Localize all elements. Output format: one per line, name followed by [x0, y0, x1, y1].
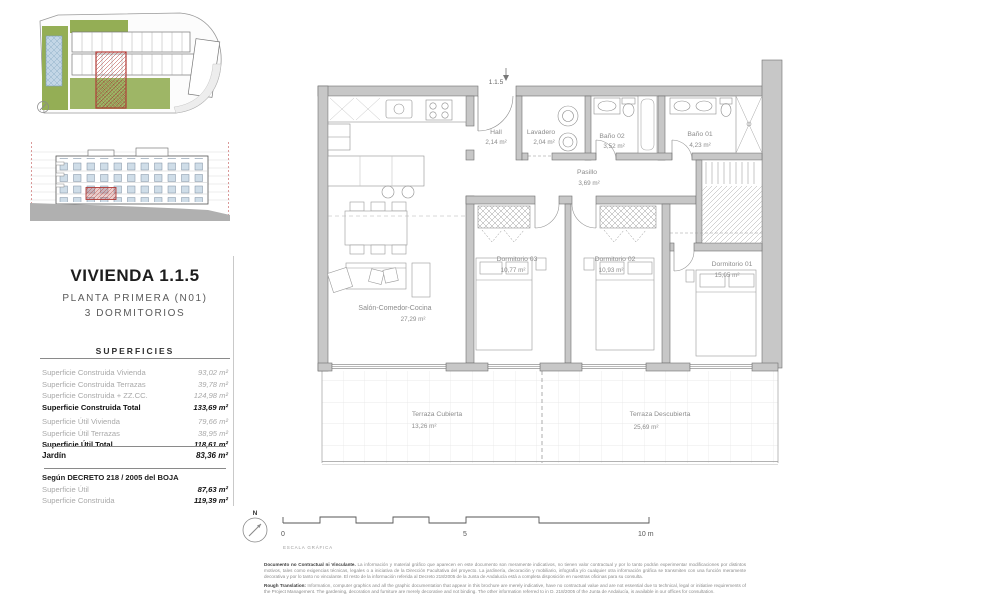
unit-title: VIVIENDA 1.1.5 — [38, 266, 232, 286]
surface-value: 133,69 m² — [193, 403, 228, 415]
surface-row: Superficie Útil Terrazas38,95 m² — [42, 429, 228, 441]
north-label: N — [253, 510, 258, 517]
bath01-fixtures — [670, 96, 762, 153]
title-block: VIVIENDA 1.1.5 PLANTA PRIMERA (N01) 3 DO… — [38, 266, 232, 319]
terrace-area — [322, 371, 778, 465]
room-area-terraza-cubierta: 13,26 m² — [412, 423, 437, 430]
living-dining-furniture — [327, 202, 466, 297]
room-area-dorm01: 15,05 m² — [715, 272, 740, 279]
surface-value: 119,39 m² — [194, 496, 228, 505]
brochure-page: VIVIENDA 1.1.5 PLANTA PRIMERA (N01) 3 DO… — [0, 0, 1001, 606]
room-area-dorm02: 10,93 m² — [599, 267, 624, 274]
rule-header — [40, 358, 230, 359]
unit-subtitle-floor: PLANTA PRIMERA (N01) — [38, 293, 232, 304]
entry-arrow-icon — [503, 68, 509, 81]
room-label-hall: Hall — [490, 129, 502, 136]
surface-label: Superficie Útil Terrazas — [42, 429, 120, 441]
scale-tick-5: 5 — [463, 531, 467, 538]
jardin-row: Jardín 83,36 m² — [42, 451, 228, 460]
unit-subtitle-bedrooms: 3 DORMITORIOS — [38, 308, 232, 319]
surface-label: Superficie Útil — [42, 485, 89, 494]
superficies-rows: Superficie Construida Vivienda93,02 m² S… — [42, 368, 228, 452]
superficies-header: SUPERFICIES — [40, 346, 230, 356]
surface-label: Superficie Construida + ZZ.CC. — [42, 391, 148, 403]
room-area-dorm03: 10,77 m² — [501, 267, 526, 274]
graphic-scale: 0 5 10 m ESCALA GRÁFICA — [281, 517, 654, 550]
room-label-terraza-cubierta: Terraza Cubierta — [412, 411, 462, 418]
room-area-terraza-descubierta: 25,69 m² — [634, 424, 659, 431]
room-area-pasillo: 3,69 m² — [578, 180, 599, 187]
surface-value: 39,78 m² — [198, 380, 228, 392]
decreto-header: Según DECRETO 218 / 2005 del BOJA — [42, 473, 228, 482]
room-area-bano01: 4,23 m² — [689, 142, 710, 149]
elevation-unit-hatch — [86, 188, 116, 200]
kitchen-fixtures — [328, 96, 466, 198]
surface-value: 79,66 m² — [198, 417, 228, 429]
room-label-dorm02: Dormitorio 02 — [595, 256, 636, 263]
jardin-label: Jardín — [42, 451, 66, 460]
rule-jardin-top — [44, 446, 226, 447]
scale-bar: N 0 5 10 m ESCALA GRÁFICA — [238, 503, 658, 558]
site-pool — [46, 36, 62, 86]
surface-label: Superficie Construida — [42, 496, 115, 505]
surface-value: 38,95 m² — [198, 429, 228, 441]
elevation-building — [56, 148, 208, 204]
surface-value: 87,63 m² — [198, 485, 228, 494]
decreto-row: Superficie Construida 119,39 m² — [42, 496, 228, 505]
elevation-terrain — [30, 203, 230, 221]
site-plan-thumbnail — [30, 8, 230, 120]
unit-plan-label: 1.1.5 — [489, 79, 504, 86]
surface-value: 124,98 m² — [194, 391, 228, 403]
floor-plan: 1.1.5 Hall 2,14 m² Lavadero 2,04 m² Baño… — [300, 58, 800, 473]
room-label-bano02: Baño 02 — [599, 133, 625, 140]
room-label-dorm03: Dormitorio 03 — [497, 256, 538, 263]
surface-label: Superficie Construida Terrazas — [42, 380, 146, 392]
legal-disclaimer: Documento no Contractual ni Vinculante. … — [264, 562, 746, 598]
north-icon: N — [243, 510, 267, 542]
surface-row: Superficie Útil Vivienda79,66 m² — [42, 417, 228, 429]
laundry-fixtures — [558, 106, 578, 151]
room-label-pasillo: Pasillo — [577, 169, 597, 176]
scale-tick-10: 10 m — [638, 531, 654, 538]
legal-lead-en: Rough Translation: — [264, 583, 306, 588]
panel-divider — [233, 256, 234, 506]
surface-row: Superficie Construida Vivienda93,02 m² — [42, 368, 228, 380]
decreto-row: Superficie Útil 87,63 m² — [42, 485, 228, 494]
surface-row: Superficie Construida Terrazas39,78 m² — [42, 380, 228, 392]
rule-jardin-bottom — [44, 468, 226, 469]
building-elevation — [30, 138, 230, 222]
room-label-lavadero: Lavadero — [527, 129, 556, 136]
legal-paragraph-es: Documento no Contractual ni Vinculante. … — [264, 562, 746, 580]
room-area-hall: 2,14 m² — [485, 139, 506, 146]
site-unit-highlight — [96, 52, 126, 108]
room-area-bano02: 3,52 m² — [603, 143, 624, 150]
scale-tick-0: 0 — [281, 531, 285, 538]
room-area-lavadero: 2,04 m² — [533, 139, 554, 146]
scale-caption: ESCALA GRÁFICA — [283, 544, 333, 550]
surface-row-total: Superficie Construida Total133,69 m² — [42, 403, 228, 415]
surface-label: Superficie Útil Vivienda — [42, 417, 120, 429]
legal-text-en: Information, computer graphics and all t… — [264, 583, 746, 594]
room-label-salon: Salón-Comedor-Cocina — [358, 305, 431, 312]
surface-label: Superficie Construida Total — [42, 403, 141, 415]
room-label-terraza-descubierta: Terraza Descubierta — [630, 411, 691, 418]
surface-label: Superficie Construida Vivienda — [42, 368, 146, 380]
entry-door — [478, 96, 513, 131]
room-label-bano01: Baño 01 — [687, 131, 713, 138]
room-area-salon: 27,29 m² — [401, 316, 426, 323]
legal-lead-es: Documento no Contractual ni Vinculante. — [264, 562, 356, 567]
surface-value: 93,02 m² — [198, 368, 228, 380]
jardin-value: 83,36 m² — [196, 451, 228, 460]
room-label-dorm01: Dormitorio 01 — [712, 261, 753, 268]
legal-paragraph-en: Rough Translation: Information, computer… — [264, 583, 746, 595]
surface-row: Superficie Construida + ZZ.CC.124,98 m² — [42, 391, 228, 403]
